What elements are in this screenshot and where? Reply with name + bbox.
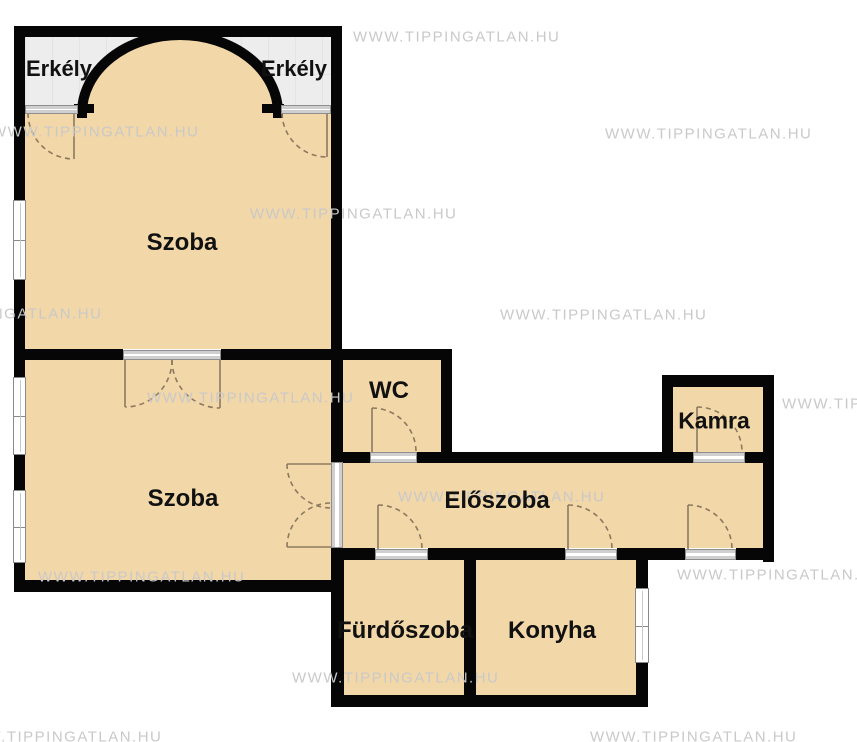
door-opening-balcony-left bbox=[25, 105, 78, 114]
door-opening-wc bbox=[370, 452, 417, 463]
wall-segment bbox=[14, 349, 123, 360]
wall-segment bbox=[441, 349, 452, 463]
room-label-erkely-right: Erkély bbox=[261, 56, 327, 82]
watermark-text: WWW.TIPPINGATLAN.HU bbox=[353, 29, 560, 46]
watermark-text: WWW.TIPPINGATLAN.HU bbox=[292, 670, 499, 687]
wall-segment bbox=[736, 548, 773, 560]
wall-segment bbox=[14, 455, 25, 490]
wall-segment bbox=[331, 26, 342, 360]
window-symbol bbox=[13, 377, 26, 455]
door-opening-szoba1-szoba2 bbox=[123, 350, 221, 360]
door-opening-balcony-right bbox=[281, 105, 331, 114]
wall-segment bbox=[662, 375, 774, 387]
floor-plan: Erkély Erkély Szoba Szoba WC Kamra Elősz… bbox=[0, 0, 857, 742]
wall-segment bbox=[636, 548, 648, 588]
window-symbol bbox=[13, 490, 26, 563]
room-label-kamra: Kamra bbox=[678, 408, 750, 435]
door-opening-szoba2-eloszoba bbox=[331, 462, 343, 548]
wall-segment bbox=[662, 375, 673, 463]
wall-segment bbox=[331, 548, 375, 560]
room-label-szoba-2: Szoba bbox=[148, 485, 219, 513]
wall-segment bbox=[428, 548, 565, 560]
door-opening-entrance bbox=[685, 549, 736, 560]
wall-segment bbox=[417, 452, 693, 463]
arch-floor bbox=[82, 35, 278, 113]
wall-segment bbox=[221, 349, 452, 360]
wall-segment bbox=[14, 360, 25, 377]
watermark-text: WWW.TIPPINGATLAN.HU bbox=[677, 567, 857, 584]
watermark-text: WWW.TIPPINGATLAN.HU bbox=[250, 206, 457, 223]
watermark-text: WWW.TIPPINGATLAN.HU bbox=[0, 729, 162, 742]
door-opening-kamra bbox=[693, 452, 745, 463]
room-label-wc: WC bbox=[369, 377, 409, 405]
door-opening-konyha bbox=[565, 549, 617, 560]
window-symbol bbox=[13, 200, 26, 280]
wall-segment bbox=[332, 695, 648, 707]
watermark-text: WWW.TIPPINGATLAN.HU bbox=[147, 390, 354, 407]
watermark-text: WWW.TIPPINGATLAN.HU bbox=[0, 306, 102, 323]
watermark-text: WWW.TIPPINGATLAN.HU bbox=[0, 124, 199, 141]
wall-segment bbox=[636, 663, 648, 707]
wall-segment bbox=[617, 548, 685, 560]
room-label-szoba-1: Szoba bbox=[147, 229, 218, 257]
window-symbol bbox=[635, 588, 649, 663]
watermark-text: WWW.TIPPINGATLAN.HU bbox=[590, 729, 797, 742]
room-label-erkely-left: Erkély bbox=[26, 56, 92, 82]
door-opening-furdoszoba bbox=[375, 549, 428, 560]
wall-segment bbox=[331, 360, 343, 462]
room-label-furdoszoba: Fürdőszoba bbox=[337, 617, 473, 645]
watermark-text: WWW.TIPPINGATLAN.HU bbox=[38, 569, 245, 586]
room-label-konyha: Konyha bbox=[508, 617, 596, 645]
wall-segment bbox=[14, 26, 342, 37]
room-label-eloszoba: Előszoba bbox=[444, 487, 549, 515]
watermark-text: WWW.TIPPINGATLAN.HU bbox=[500, 307, 707, 324]
watermark-text: WWW.TIPPINGATLAN.HU bbox=[605, 126, 812, 143]
wall-segment bbox=[763, 375, 774, 562]
watermark-text: WWW.TIPPINGATLAN.HU bbox=[782, 396, 857, 413]
